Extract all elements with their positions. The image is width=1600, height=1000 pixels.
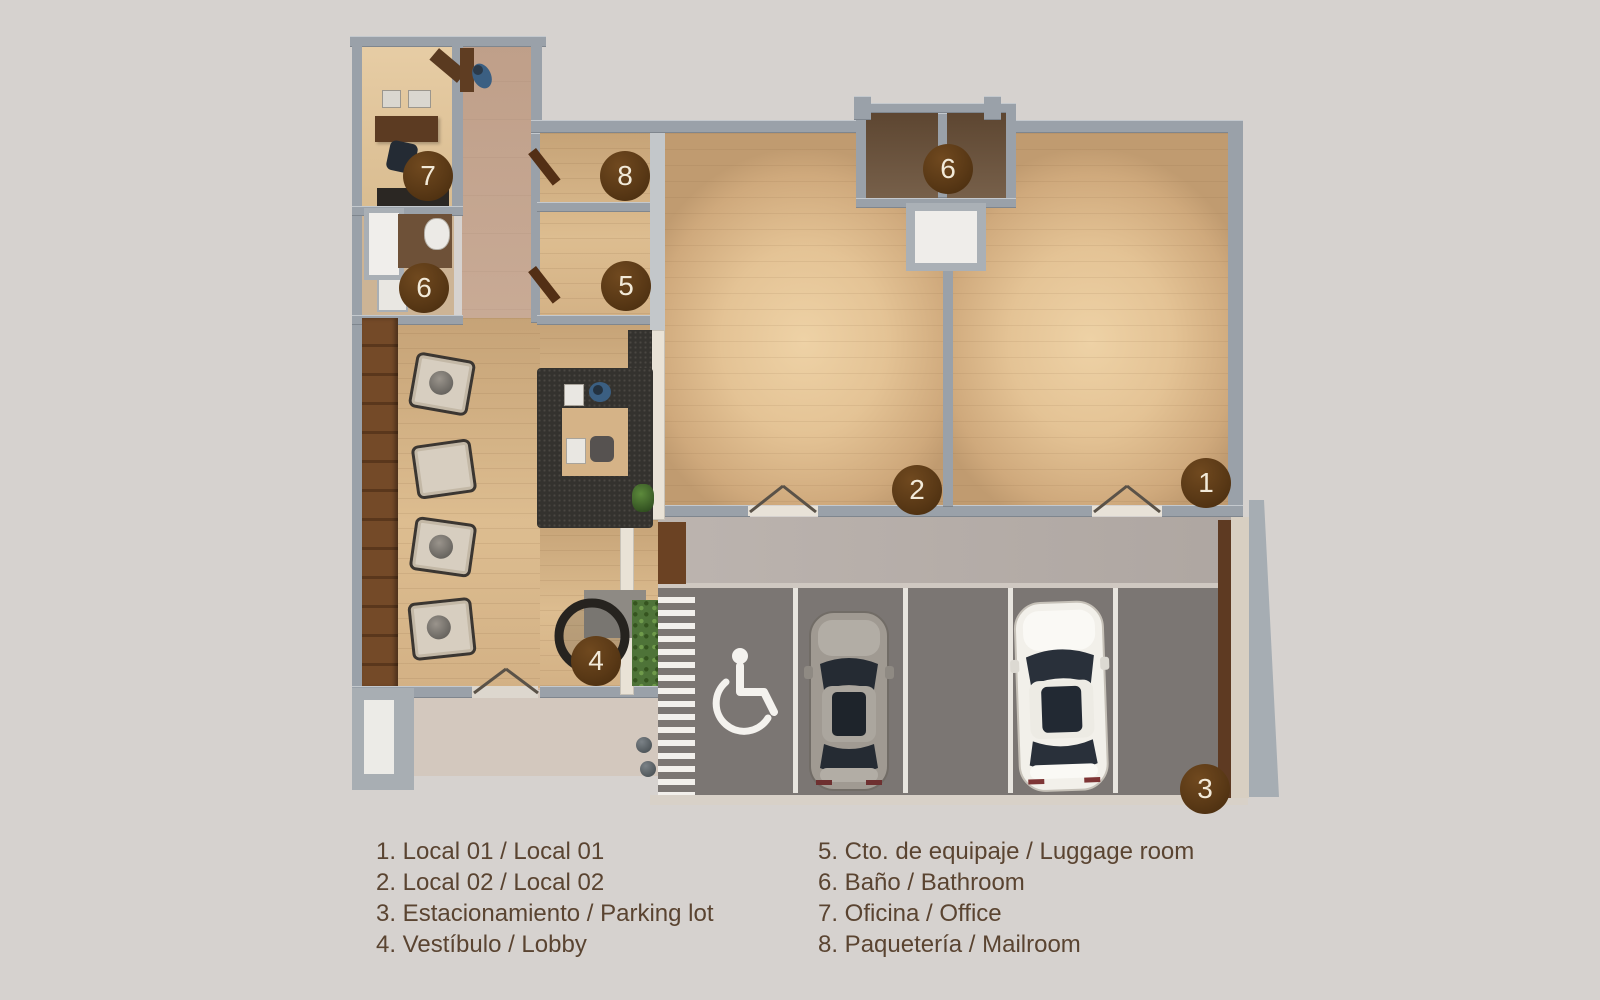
- shaft-interior: [915, 211, 977, 263]
- room-marker-luggage-room: 5: [601, 261, 651, 311]
- reception-plant: [632, 484, 654, 512]
- seated-person: [427, 533, 454, 560]
- legend-item-mailroom: 8. Paquetería / Mailroom: [818, 929, 1194, 960]
- corridor-desk: [460, 48, 474, 92]
- wall-local02-left-upper: [650, 133, 665, 330]
- wall-locals-divider: [943, 266, 953, 507]
- wall-topleft-top: [350, 36, 546, 47]
- floorplan-render: 7 6 8 5 6 2 1 4 3 1. Local 01 / Local 01…: [0, 0, 1600, 1000]
- waiting-armchair: [407, 597, 477, 661]
- seated-person: [427, 369, 455, 397]
- seated-person: [426, 614, 452, 640]
- legend-item-parking: 3. Estacionamiento / Parking lot: [376, 898, 714, 929]
- right-wall-face: [1231, 517, 1249, 798]
- legend-item-luggage: 5. Cto. de equipaje / Luggage room: [818, 836, 1194, 867]
- legend-column-left: 1. Local 01 / Local 01 2. Local 02 / Loc…: [376, 836, 714, 960]
- parking-line: [1113, 588, 1118, 793]
- parking-line: [903, 588, 908, 793]
- parking-curb: [650, 795, 1248, 805]
- legend-item-lobby: 4. Vestíbulo / Lobby: [376, 929, 714, 960]
- wall-left-outer: [352, 36, 362, 695]
- legend-item-local01: 1. Local 01 / Local 01: [376, 836, 714, 867]
- reception-monitor: [564, 384, 584, 406]
- crosswalk-ramp: [658, 597, 695, 795]
- door-sill-lobby: [472, 686, 538, 698]
- parking-line: [1008, 588, 1013, 793]
- bollard: [636, 737, 652, 753]
- room-marker-local-02: 2: [892, 465, 942, 515]
- waiting-armchair: [411, 438, 478, 500]
- room-marker-lobby: 4: [571, 636, 621, 686]
- toilet: [424, 218, 450, 250]
- legend-item-bathroom: 6. Baño / Bathroom: [818, 867, 1194, 898]
- legend-item-office: 7. Oficina / Office: [818, 898, 1194, 929]
- wall-parking-right-outer: [1249, 500, 1279, 797]
- waiting-armchair: [408, 351, 477, 417]
- floor-parking-lot: [658, 588, 1218, 795]
- room-marker-bathroom-left: 6: [399, 263, 449, 313]
- room-marker-mailroom: 8: [600, 151, 650, 201]
- hedge-planter: [632, 600, 658, 686]
- right-wood-strip: [1218, 520, 1231, 798]
- office-guest-chair: [408, 90, 431, 108]
- floor-sidewalk: [412, 692, 658, 776]
- walkway-planter: [658, 522, 686, 584]
- wall-locals-bottom-a: [650, 505, 750, 517]
- office-desk: [375, 116, 438, 142]
- parking-line: [793, 588, 798, 793]
- floor-walkway: [658, 517, 1243, 587]
- legend-item-local02: 2. Local 02 / Local 02: [376, 867, 714, 898]
- wall-rooms-bottom: [537, 315, 652, 325]
- room-marker-office: 7: [403, 151, 453, 201]
- wall-building-right: [1228, 120, 1243, 517]
- wall-bathc-right: [1006, 103, 1016, 208]
- room-marker-parking: 3: [1180, 764, 1230, 814]
- wall-rooms-divider: [537, 202, 652, 212]
- bollard: [640, 761, 656, 777]
- door-sill-local02: [748, 506, 818, 516]
- entry-structure-interior: [364, 700, 394, 774]
- wall-corridor-right: [531, 36, 542, 133]
- wall-locals-bottom-b: [818, 505, 1092, 517]
- room-marker-local-01: 1: [1181, 458, 1231, 508]
- office-guest-chair: [382, 90, 401, 108]
- reception-monitor: [566, 438, 586, 464]
- legend-column-right: 5. Cto. de equipaje / Luggage room 6. Ba…: [818, 836, 1194, 960]
- door-sill-local01: [1092, 506, 1162, 516]
- room-marker-bathroom-center: 6: [923, 144, 973, 194]
- wall-lobby-bottom-right: [540, 686, 662, 698]
- wall-stub-right: [984, 96, 1001, 120]
- wood-panel-wall: [362, 318, 398, 688]
- wall-stub-left: [854, 96, 871, 120]
- waiting-armchair: [409, 516, 478, 578]
